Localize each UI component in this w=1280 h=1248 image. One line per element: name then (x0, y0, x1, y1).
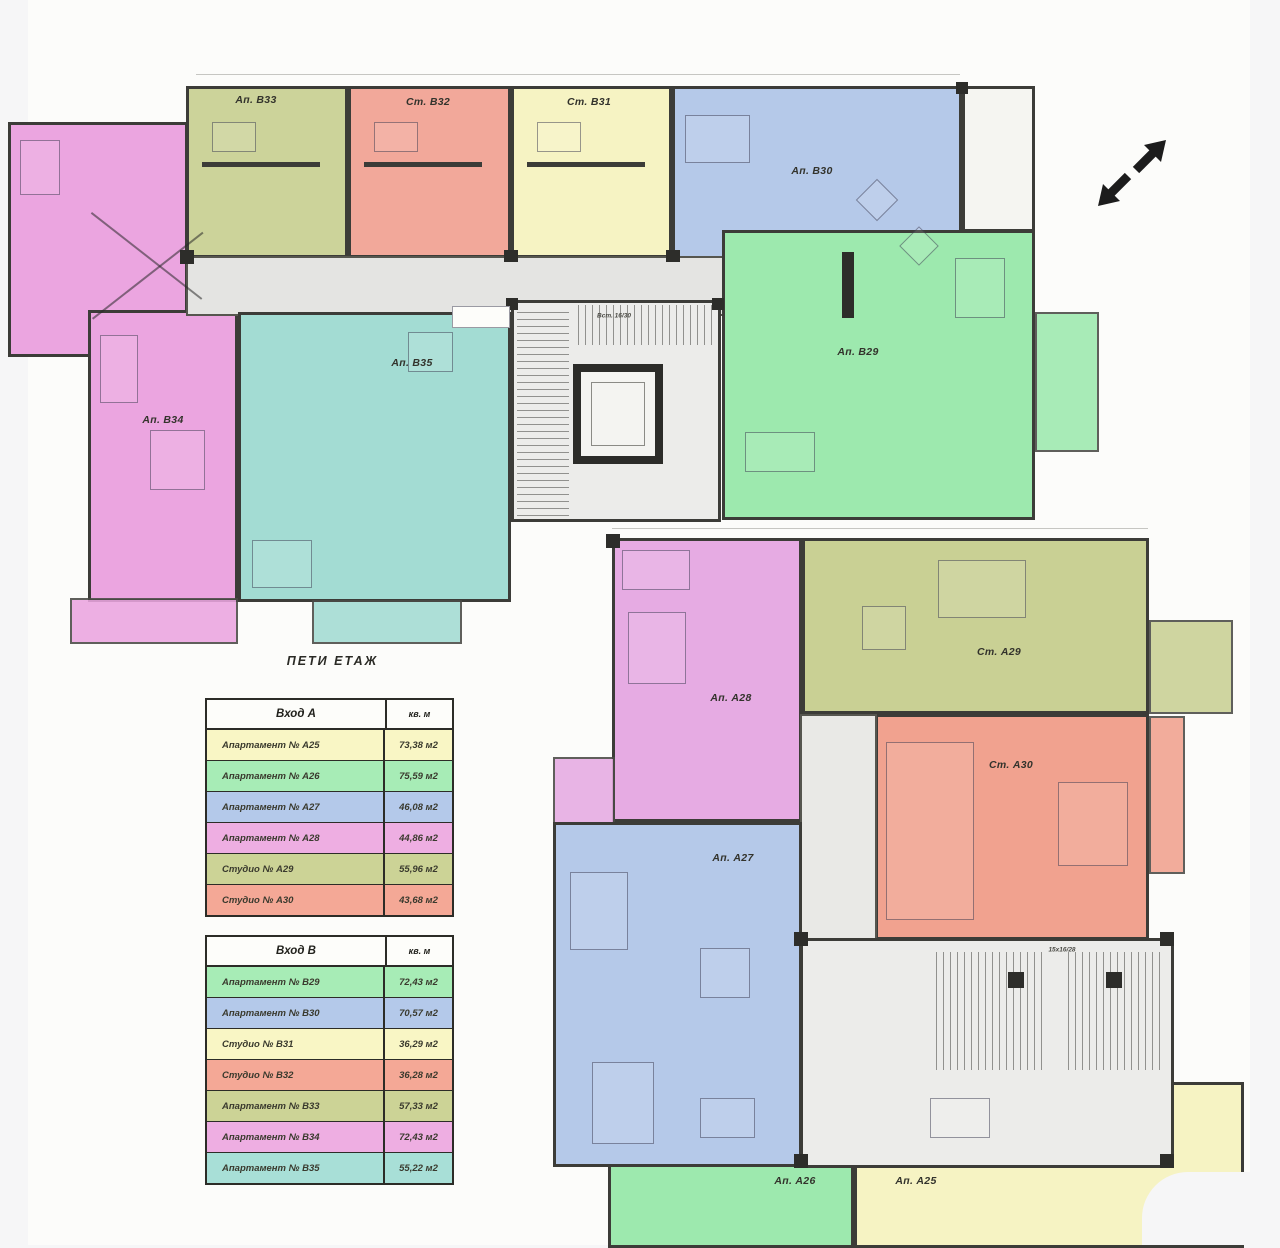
stair-label-b: Вст. 16/30 (597, 313, 631, 320)
elevator-shaft (573, 364, 663, 464)
stair-label-a: 15x16/28 (1048, 947, 1075, 954)
legend-header: Вход В кв. м (207, 937, 452, 967)
legend-area-value: 36,28 м2 (385, 1060, 452, 1090)
room-label-a25: Ап. А25 (895, 1175, 936, 1187)
wall-post (504, 250, 518, 262)
wall-post (956, 82, 968, 94)
legend-row: Студио № В32 36,28 м2 (207, 1059, 452, 1090)
legend-apartment-label: Апартамент № В35 (207, 1153, 385, 1183)
furniture-outline (100, 335, 138, 403)
fixture-outline (374, 122, 418, 152)
legend-entrance-name: Вход В (207, 937, 387, 965)
furniture-outline (938, 560, 1026, 618)
legend-apartment-label: Апартамент № А26 (207, 761, 385, 791)
furniture-outline (700, 948, 750, 998)
room-b31 (511, 86, 672, 258)
fixture-outline (886, 742, 974, 920)
room-tag-box (452, 306, 510, 328)
fixture-outline (212, 122, 256, 152)
wall-post (842, 252, 854, 318)
partition-wall (364, 162, 482, 167)
partition-wall (527, 162, 645, 167)
dimension-line (196, 74, 960, 75)
room-label-b31: Ст. В31 (567, 96, 611, 108)
stair-post (1106, 972, 1122, 988)
legend-row: Апартамент № В29 72,43 м2 (207, 967, 452, 997)
wall-post (180, 250, 194, 264)
room-label-a28: Ап. А28 (710, 692, 751, 704)
viewer-rounded-corner (1142, 1172, 1280, 1245)
furniture-outline (628, 612, 686, 684)
legend-row: Апартамент № В35 55,22 м2 (207, 1152, 452, 1183)
legend-apartment-label: Студио № В31 (207, 1029, 385, 1059)
legend-row: Студио № А30 43,68 м2 (207, 884, 452, 915)
furniture-outline (685, 115, 750, 163)
room-label-b32: Ст. В32 (406, 96, 450, 108)
wall-post (606, 534, 620, 548)
legend-area-value: 55,96 м2 (385, 854, 452, 884)
legend-apartment-label: Студио № А30 (207, 885, 385, 915)
legend-row: Апартамент № А28 44,86 м2 (207, 822, 452, 853)
balcony-a30 (1149, 716, 1185, 874)
wall-post (1160, 932, 1174, 946)
stair-treads (572, 305, 716, 345)
furniture-outline (570, 872, 628, 950)
furniture-outline (1058, 782, 1128, 866)
legend-area-value: 70,57 м2 (385, 998, 452, 1028)
legend-entrance-name: Вход А (207, 700, 387, 728)
legend-apartment-label: Студио № В32 (207, 1060, 385, 1090)
legend-apartment-label: Апартамент № А28 (207, 823, 385, 853)
stair-treads (930, 952, 1048, 1070)
room-label-a30: Ст. А30 (989, 759, 1033, 771)
furniture-outline (955, 258, 1005, 318)
legend-row: Апартамент № В30 70,57 м2 (207, 997, 452, 1028)
legend-area-value: 55,22 м2 (385, 1153, 452, 1183)
legend-apartment-label: Апартамент № В29 (207, 967, 385, 997)
room-label-a27: Ап. А27 (712, 852, 753, 864)
wall-post (794, 1154, 808, 1168)
floorplan-canvas: Ап. В33 Ст. В32 Ст. В31 Ап. В30 Ап. В34 … (0, 0, 1280, 1245)
furniture-outline (592, 1062, 654, 1144)
furniture-outline (745, 432, 815, 472)
room-label-b30: Ап. В30 (791, 165, 832, 177)
legend-apartment-label: Апартамент № А25 (207, 730, 385, 760)
furniture-outline (252, 540, 312, 588)
legend-apartment-label: Апартамент № В33 (207, 1091, 385, 1121)
legend-row: Студио № А29 55,96 м2 (207, 853, 452, 884)
balcony-b29 (1035, 312, 1099, 452)
legend-area-value: 36,29 м2 (385, 1029, 452, 1059)
room-label-b29: Ап. В29 (837, 346, 878, 358)
furniture-outline (622, 550, 690, 590)
stair-treads (1062, 952, 1166, 1070)
dimension-line (612, 528, 1148, 529)
legend-unit-label: кв. м (387, 700, 452, 728)
room-label-b35: Ап. В35 (391, 357, 432, 369)
fixture-outline (930, 1098, 990, 1138)
plan-title: ПЕТИ ЕТАЖ (230, 654, 435, 668)
furniture-outline (150, 430, 205, 490)
legend-table-entrance-a: Вход А кв. м Апартамент № А25 73,38 м2 А… (205, 698, 454, 917)
legend-row: Апартамент № А25 73,38 м2 (207, 730, 452, 760)
legend-area-value: 46,08 м2 (385, 792, 452, 822)
legend-row: Апартамент № А27 46,08 м2 (207, 791, 452, 822)
furniture-outline (862, 606, 906, 650)
room-unmarked (962, 86, 1035, 232)
room-b32 (348, 86, 511, 258)
legend-area-value: 43,68 м2 (385, 885, 452, 915)
balcony-b35 (312, 600, 462, 644)
legend-table-entrance-b: Вход В кв. м Апартамент № В29 72,43 м2 А… (205, 935, 454, 1185)
wall-post (666, 250, 680, 262)
legend-apartment-label: Апартамент № В30 (207, 998, 385, 1028)
room-label-b33: Ап. В33 (235, 94, 276, 106)
legend-header: Вход А кв. м (207, 700, 452, 730)
legend-unit-label: кв. м (387, 937, 452, 965)
legend-area-value: 44,86 м2 (385, 823, 452, 853)
wall-post (712, 298, 724, 310)
legend-row: Апартамент № В33 57,33 м2 (207, 1090, 452, 1121)
balcony-b34 (70, 598, 238, 644)
elevator-cab (591, 382, 645, 446)
fixture-outline (20, 140, 60, 195)
legend-row: Апартамент № А26 75,59 м2 (207, 760, 452, 791)
legend-apartment-label: Апартамент № В34 (207, 1122, 385, 1152)
room-label-a29: Ст. А29 (977, 646, 1021, 658)
legend-apartment-label: Студио № А29 (207, 854, 385, 884)
legend-area-value: 72,43 м2 (385, 967, 452, 997)
room-label-b34: Ап. В34 (142, 414, 183, 426)
legend-row: Апартамент № В34 72,43 м2 (207, 1121, 452, 1152)
legend-row: Студио № В31 36,29 м2 (207, 1028, 452, 1059)
room-b33 (186, 86, 348, 258)
wall-post (794, 932, 808, 946)
corridor-entrance-a (800, 714, 877, 944)
wall-post (1160, 1154, 1174, 1168)
fixture-outline (700, 1098, 755, 1138)
legend-area-value: 72,43 м2 (385, 1122, 452, 1152)
legend-area-value: 73,38 м2 (385, 730, 452, 760)
stair-post (1008, 972, 1024, 988)
legend-apartment-label: Апартамент № А27 (207, 792, 385, 822)
balcony-a29 (1149, 620, 1233, 714)
fixture-outline (537, 122, 581, 152)
legend-area-value: 57,33 м2 (385, 1091, 452, 1121)
partition-wall (202, 162, 320, 167)
room-label-a26: Ап. А26 (774, 1175, 815, 1187)
legend-area-value: 75,59 м2 (385, 761, 452, 791)
expand-icon[interactable] (1092, 136, 1172, 210)
stair-treads (517, 306, 569, 516)
